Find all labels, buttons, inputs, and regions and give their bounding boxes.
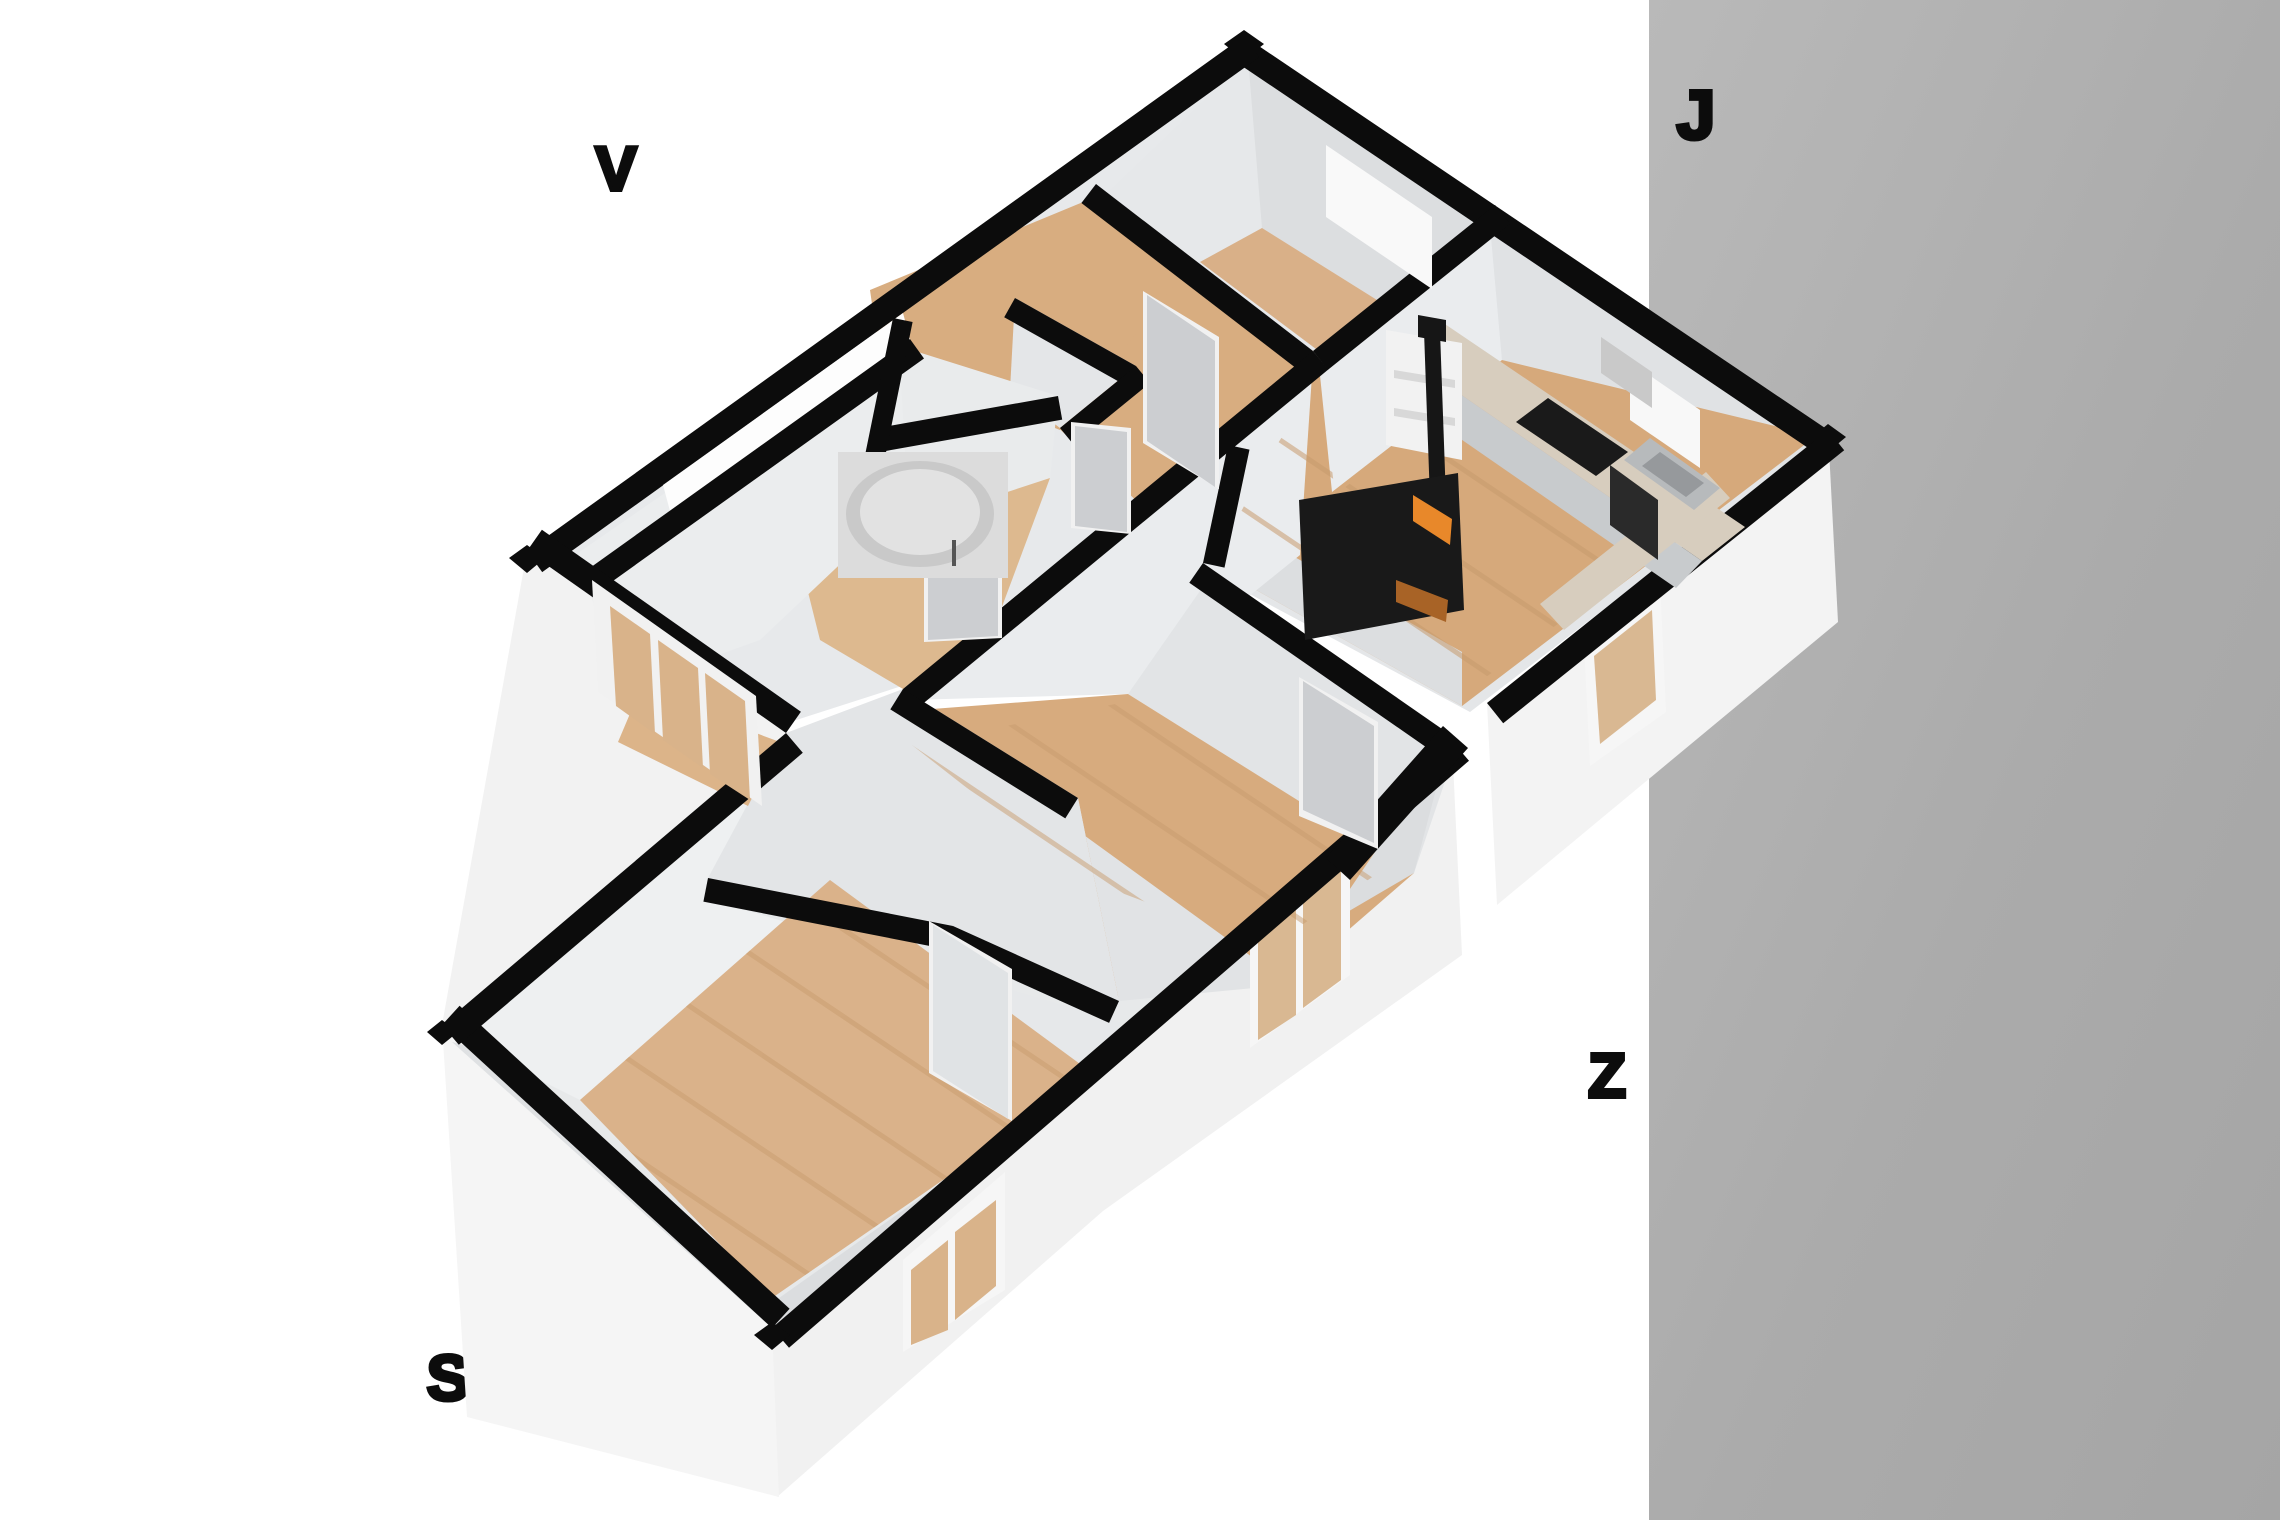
svg-text:V: V (595, 135, 636, 204)
svg-text:Z: Z (1588, 1042, 1626, 1111)
svg-text:J: J (1677, 76, 1716, 154)
